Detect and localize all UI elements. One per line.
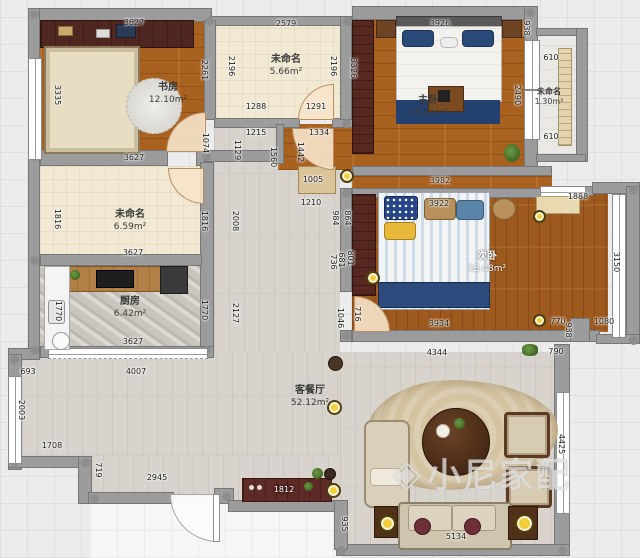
wall-joint xyxy=(222,492,231,501)
room-label-storage[interactable]: 未命名6.59m² xyxy=(114,209,146,233)
wall-lamp[interactable] xyxy=(533,314,546,327)
wall xyxy=(334,500,348,550)
plant[interactable] xyxy=(312,468,323,479)
wall-joint xyxy=(90,494,99,503)
wall-joint xyxy=(30,346,39,355)
entrance-door-leaf[interactable] xyxy=(213,494,220,542)
wall-joint xyxy=(343,17,352,26)
wall xyxy=(210,16,356,26)
window[interactable] xyxy=(524,40,540,90)
plant[interactable] xyxy=(304,482,313,491)
wall xyxy=(276,124,284,164)
window[interactable] xyxy=(8,376,22,464)
table-lamp[interactable] xyxy=(515,514,534,533)
plant[interactable] xyxy=(522,344,538,356)
plant[interactable] xyxy=(70,270,80,280)
hall-cabinet[interactable] xyxy=(298,166,336,194)
vase[interactable] xyxy=(324,468,336,480)
wall-joint xyxy=(30,10,39,19)
chaise-lounge[interactable] xyxy=(364,420,410,508)
room-label-kitchen[interactable]: 厨房6.42m² xyxy=(114,296,146,320)
room-label-cloak[interactable]: 未命名5.66m² xyxy=(270,54,302,78)
table-lamp[interactable] xyxy=(379,515,396,532)
wall xyxy=(352,166,552,176)
laptop[interactable] xyxy=(116,24,136,38)
wall xyxy=(626,186,640,344)
armchair[interactable] xyxy=(506,466,552,508)
wall-lamp[interactable] xyxy=(340,169,354,183)
wall xyxy=(576,28,588,162)
floor-lamp[interactable] xyxy=(328,356,343,371)
wall xyxy=(536,154,586,162)
master-nightstand-left[interactable] xyxy=(376,20,396,38)
wall-joint xyxy=(205,17,214,26)
second-pillow-wicker xyxy=(424,198,456,220)
master-pillow-left xyxy=(402,30,434,47)
desk-item[interactable] xyxy=(58,26,73,36)
wall xyxy=(340,188,352,292)
wall xyxy=(214,118,300,128)
second-pillow-pattern xyxy=(384,196,418,220)
wall-lamp[interactable] xyxy=(326,483,341,498)
room-label-study[interactable]: 书房12.10m² xyxy=(149,82,187,106)
desk-pad[interactable] xyxy=(96,29,110,38)
wall-joint xyxy=(342,189,351,198)
wall-joint xyxy=(342,331,351,340)
wall-joint xyxy=(629,336,638,345)
second-bed-runner xyxy=(378,282,490,308)
plant[interactable] xyxy=(454,418,465,429)
wall-joint xyxy=(337,546,346,555)
window[interactable] xyxy=(612,194,626,338)
wall-lamp[interactable] xyxy=(327,400,342,415)
cooktop[interactable] xyxy=(96,270,134,288)
armchair[interactable] xyxy=(504,412,550,458)
entry-console[interactable] xyxy=(242,478,332,502)
master-pillow-right xyxy=(462,30,494,47)
room-label-balcony[interactable]: 未命名1.30m² xyxy=(535,87,564,107)
window[interactable] xyxy=(48,348,208,359)
wall-joint xyxy=(526,8,535,17)
room-label-second[interactable]: 次卧18.48m² xyxy=(468,251,506,275)
wall-lamp[interactable] xyxy=(366,271,380,285)
wall xyxy=(88,492,174,504)
second-pillow-yellow xyxy=(384,222,416,240)
wall-joint xyxy=(342,119,351,128)
chaise-pillow xyxy=(370,468,402,486)
decor-dots xyxy=(249,485,254,490)
wall-joint xyxy=(558,546,567,555)
window[interactable] xyxy=(28,58,42,160)
floor-plan-canvas: 书房12.10m² 未命名5.66m² 主卧16.64m² 未命名1.30m² … xyxy=(0,0,640,558)
room-label-master[interactable]: 主卧16.64m² xyxy=(409,95,447,119)
room-label-living[interactable]: 客餐厅52.12m² xyxy=(291,385,329,409)
wall-lamp[interactable] xyxy=(533,210,546,223)
sink-basin xyxy=(48,300,65,324)
plant[interactable] xyxy=(504,144,520,162)
master-nightstand-right[interactable] xyxy=(502,20,522,38)
master-wardrobe[interactable] xyxy=(352,20,374,154)
wall-joint xyxy=(30,256,39,265)
wall xyxy=(570,318,590,342)
sofa-pillow xyxy=(414,518,431,535)
kitchen-stool[interactable] xyxy=(52,332,70,350)
wall-joint xyxy=(81,458,90,467)
second-pillow-blue xyxy=(456,200,484,220)
wall-joint xyxy=(629,186,638,195)
decor-dots xyxy=(257,485,262,490)
wall xyxy=(204,150,278,162)
wall-joint xyxy=(202,152,211,161)
wall xyxy=(340,16,352,120)
wall xyxy=(40,254,202,266)
master-pillow-roll xyxy=(440,37,458,48)
wall xyxy=(204,20,216,120)
window[interactable] xyxy=(556,392,570,514)
second-nightstand[interactable] xyxy=(492,198,516,220)
sofa-pillow xyxy=(464,518,481,535)
wall-joint xyxy=(10,355,19,364)
cup xyxy=(436,424,450,438)
kitchen-appliance[interactable] xyxy=(160,266,188,294)
wall-joint xyxy=(556,345,565,354)
